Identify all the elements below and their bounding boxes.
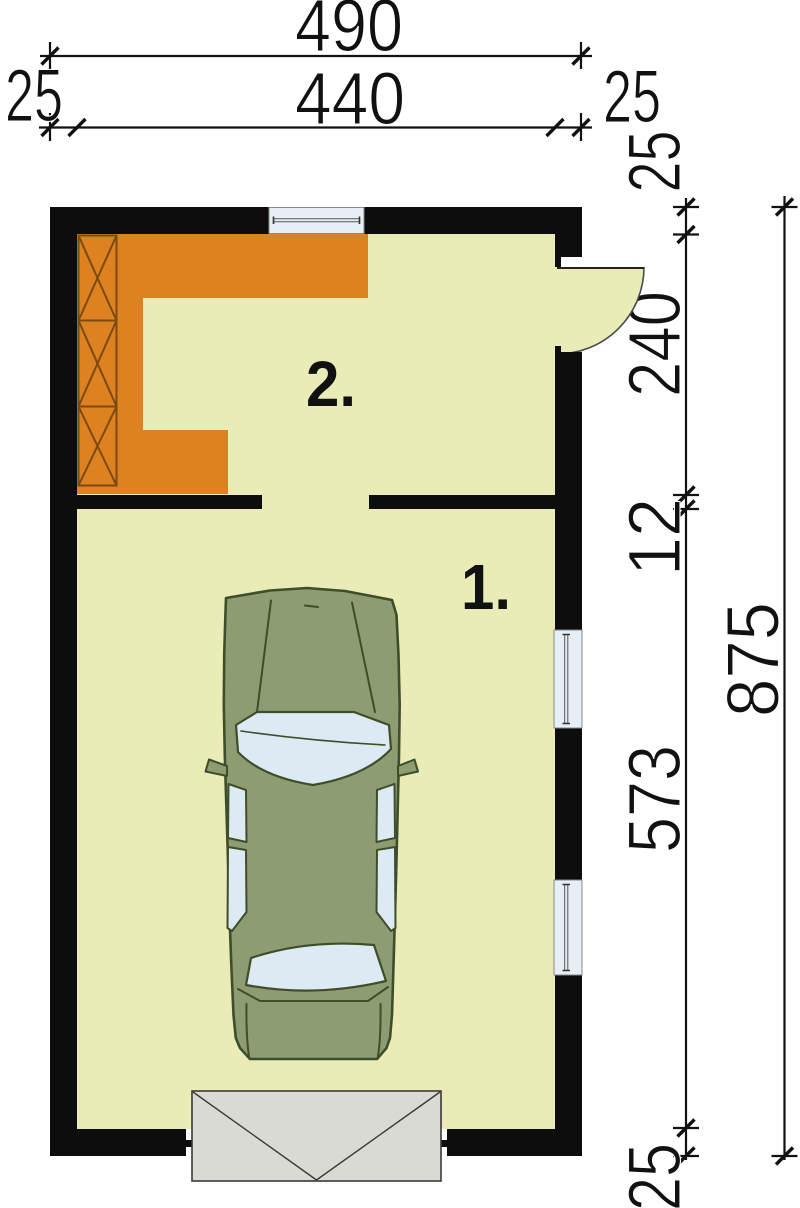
svg-text:875: 875 xyxy=(712,602,795,717)
svg-text:12: 12 xyxy=(613,498,696,576)
svg-text:573: 573 xyxy=(613,745,696,853)
svg-text:25: 25 xyxy=(613,131,696,193)
svg-text:2.: 2. xyxy=(306,348,356,420)
svg-text:440: 440 xyxy=(295,57,405,140)
svg-text:25: 25 xyxy=(603,55,661,138)
svg-text:25: 25 xyxy=(613,1143,696,1208)
svg-text:1.: 1. xyxy=(461,551,511,623)
svg-text:25: 25 xyxy=(5,54,63,137)
